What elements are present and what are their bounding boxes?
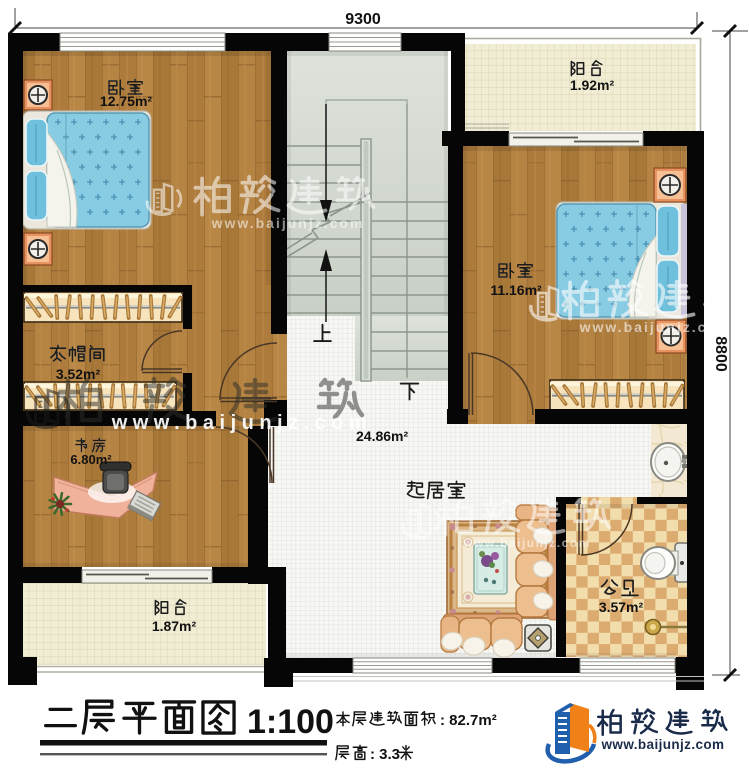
svg-text:www.baijunjz.com: www.baijunjz.com: [601, 737, 725, 752]
svg-text:www.baijunjz.com: www.baijunjz.com: [462, 536, 591, 550]
svg-text:8800: 8800: [712, 336, 729, 372]
svg-text:www.baijunjz.com: www.baijunjz.com: [111, 412, 373, 434]
svg-text:3.57m²: 3.57m²: [599, 599, 644, 615]
svg-text:1.92m²: 1.92m²: [570, 77, 615, 93]
svg-text:www.baijunjz.com: www.baijunjz.com: [211, 215, 365, 231]
svg-text:1.87m²: 1.87m²: [152, 618, 197, 634]
svg-text:www.baijunjz.com: www.baijunjz.com: [579, 319, 733, 335]
svg-text:3.52m²: 3.52m²: [56, 366, 101, 382]
svg-text:24.86m²: 24.86m²: [356, 428, 408, 444]
svg-text:11.16m²: 11.16m²: [490, 282, 542, 298]
svg-text:12.75m²: 12.75m²: [100, 93, 152, 109]
svg-text:: 82.7m²: : 82.7m²: [440, 712, 497, 729]
svg-text:6.80m²: 6.80m²: [70, 452, 112, 467]
svg-text:: 3.3: : 3.3: [370, 746, 400, 763]
svg-text:1:100: 1:100: [247, 703, 334, 741]
svg-text:9300: 9300: [345, 11, 381, 28]
